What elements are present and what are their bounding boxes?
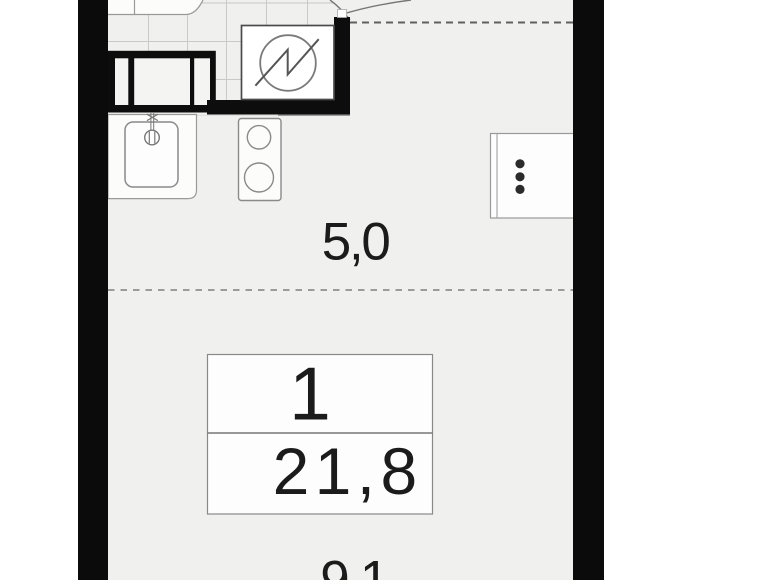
- svg-text:9,1: 9,1: [320, 551, 387, 580]
- svg-text:5,0: 5,0: [322, 213, 390, 272]
- svg-text:21,8: 21,8: [273, 434, 423, 508]
- svg-text:1: 1: [289, 352, 331, 436]
